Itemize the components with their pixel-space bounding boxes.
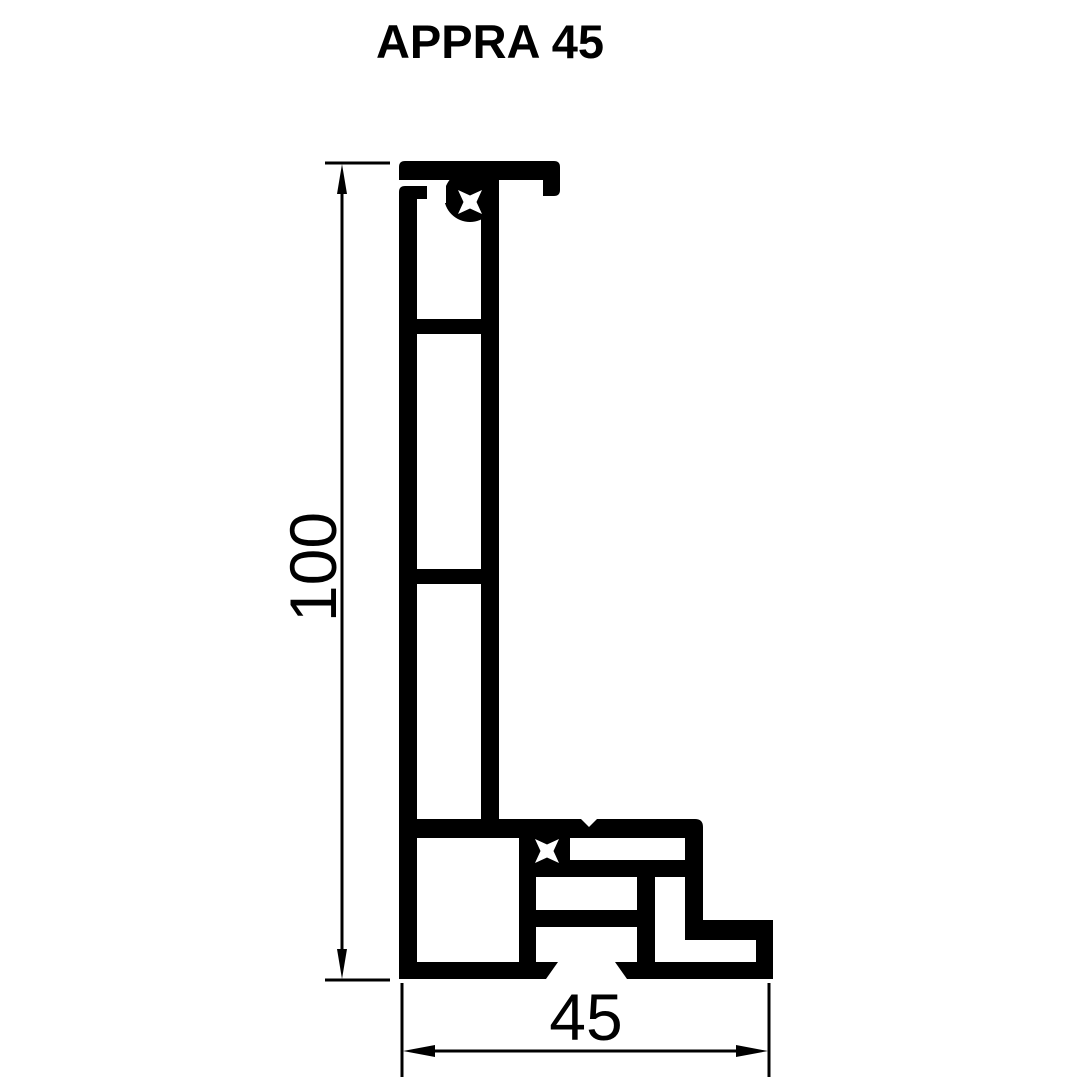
- height-dimension: 100: [276, 163, 390, 980]
- profile-solid: [399, 161, 773, 979]
- tube-web-lower: [417, 569, 481, 584]
- page-root: APPRA 45: [0, 0, 1080, 1080]
- height-arrow-up-icon: [337, 164, 347, 194]
- drawing-title: APPRA 45: [376, 15, 604, 68]
- width-dimension-label: 45: [549, 980, 622, 1054]
- profile-cross-section: APPRA 45: [0, 0, 1080, 1080]
- screw-channel-mouth: [429, 180, 446, 203]
- height-dimension-label: 100: [276, 512, 350, 622]
- tube-right-wall: [481, 170, 499, 838]
- width-arrow-left-icon: [403, 1045, 435, 1057]
- base-bottom-bar-left: [399, 962, 558, 979]
- profile-cutouts: [429, 180, 597, 863]
- width-dimension: 45: [402, 980, 769, 1077]
- width-arrow-right-icon: [736, 1045, 768, 1057]
- tube-web-upper: [417, 319, 481, 334]
- height-arrow-down-icon: [337, 949, 347, 979]
- base-bottom-bar-right: [615, 962, 773, 979]
